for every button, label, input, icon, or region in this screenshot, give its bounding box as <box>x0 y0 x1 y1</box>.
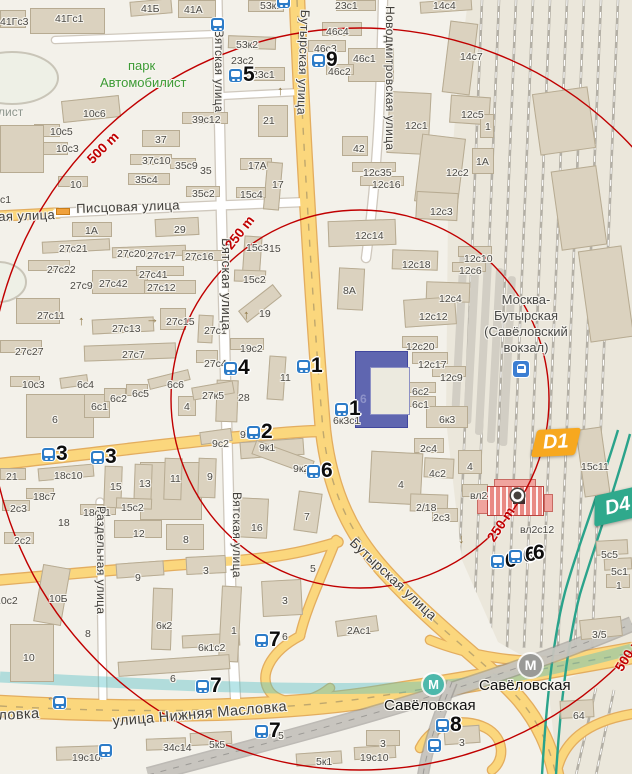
map-canvas[interactable]: 6 41Гс341Гс141Б41А53к153к223с223с12110с6… <box>0 0 632 774</box>
radius-circle-250m <box>171 210 549 588</box>
radius-circle-500m <box>0 28 632 770</box>
radius-rings-layer <box>0 0 632 774</box>
